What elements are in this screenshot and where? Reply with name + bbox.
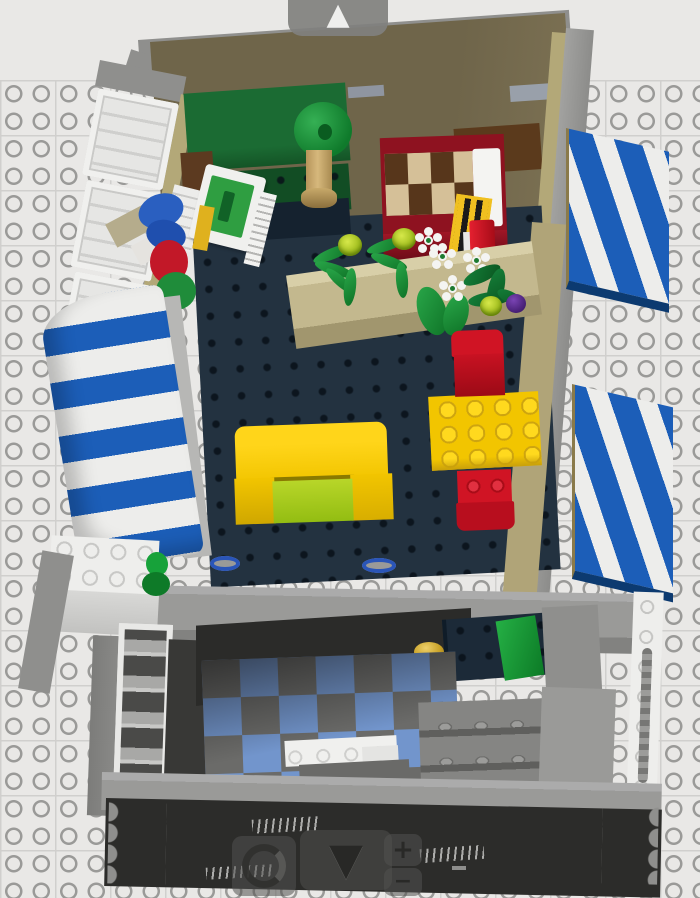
white-flower[interactable]	[438, 252, 447, 261]
flower-center	[440, 254, 445, 259]
sofa-arm-right	[350, 473, 394, 520]
zoom-out-icon: −	[394, 871, 412, 893]
flower-center	[426, 238, 431, 243]
white-flower[interactable]	[472, 256, 481, 265]
facade-molding-right	[601, 805, 659, 884]
palm-top	[338, 234, 362, 256]
pan-up-icon: ▲	[326, 0, 349, 30]
tree-pot	[301, 188, 337, 208]
striped-awning-top-right[interactable]	[566, 128, 669, 313]
chair-back	[456, 501, 515, 531]
white-door-frame[interactable]	[82, 88, 179, 190]
zoom-in-icon: +	[392, 837, 414, 863]
yellow-table[interactable]	[428, 391, 542, 471]
striped-awning-bottom-right[interactable]	[572, 384, 673, 602]
sofa-arm-left	[234, 477, 276, 524]
viewport-3d[interactable]: ▲ ▼ + −	[0, 0, 700, 898]
sofa-seat	[272, 479, 353, 524]
tree-canopy-notch	[318, 124, 332, 140]
pan-up-button[interactable]: ▲	[288, 0, 388, 36]
bush-top	[480, 296, 502, 316]
red-chair[interactable]	[455, 469, 517, 533]
rotate-button[interactable]	[232, 836, 296, 896]
purple-fruit[interactable]	[506, 294, 526, 313]
flower-center	[474, 258, 479, 263]
pan-down-icon: ▼	[329, 838, 363, 882]
white-flower[interactable]	[448, 284, 457, 293]
green-plant-piece[interactable]	[142, 572, 170, 596]
rotate-icon	[242, 844, 286, 888]
flower-center	[450, 286, 455, 291]
zoom-in-button[interactable]: +	[384, 834, 422, 866]
pan-down-button[interactable]: ▼	[300, 830, 392, 890]
chair-seat	[457, 469, 512, 505]
lower-right-gray-patch	[542, 605, 603, 696]
chair-seat	[454, 353, 505, 397]
zoom-out-button[interactable]: −	[384, 868, 422, 896]
door-louvers	[91, 98, 170, 181]
blue-floor-piece[interactable]	[362, 558, 396, 573]
blue-floor-piece[interactable]	[210, 556, 240, 571]
door-bars	[119, 629, 167, 790]
red-chair[interactable]	[451, 329, 511, 397]
palm-top	[392, 228, 416, 250]
facade-molding-left	[107, 801, 167, 884]
yellow-sofa[interactable]	[232, 417, 393, 524]
white-flower[interactable]	[424, 236, 433, 245]
facade-dash	[452, 866, 466, 870]
